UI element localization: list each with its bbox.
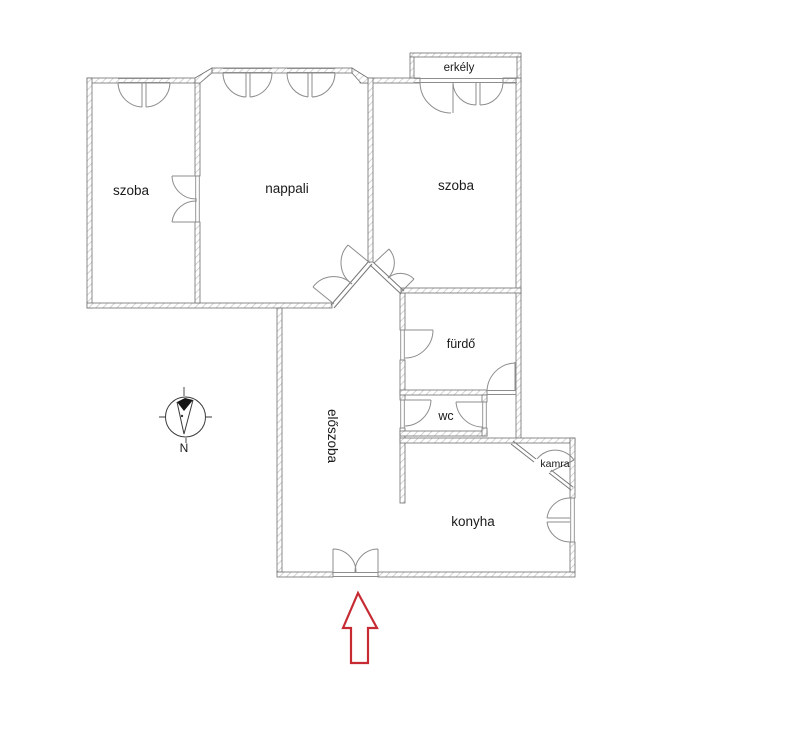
- wall: [277, 572, 333, 577]
- room-label-erkely: erkély: [444, 62, 475, 74]
- room-label-nappali: nappali: [265, 181, 309, 196]
- balcony-wall: [410, 53, 521, 57]
- floor-plan-page: szoba nappali szoba erkély fürdő wc elős…: [0, 0, 800, 738]
- wall: [378, 572, 575, 577]
- wall: [87, 303, 332, 308]
- wall: [195, 83, 200, 176]
- balcony-wall: [410, 57, 414, 78]
- wall: [195, 222, 200, 303]
- wall: [482, 395, 487, 402]
- wall: [570, 438, 575, 498]
- wall: [400, 293, 405, 330]
- wall: [570, 542, 575, 572]
- compass-north-label: N: [180, 441, 189, 455]
- room-label-kamra: kamra: [540, 458, 569, 470]
- room-label-eloszoba: előszoba: [325, 409, 340, 464]
- room-label-konyha: konyha: [451, 514, 495, 529]
- wall: [401, 288, 521, 293]
- room-label-furdo: fürdő: [447, 337, 476, 351]
- wall: [516, 78, 521, 443]
- room-label-szoba-right: szoba: [438, 178, 475, 193]
- room-label-szoba-left: szoba: [113, 183, 150, 198]
- wall: [400, 390, 487, 395]
- compass-center-dot: [181, 415, 183, 417]
- wall: [368, 78, 373, 262]
- floor-plan-drawing: szoba nappali szoba erkély fürdő wc elős…: [0, 0, 800, 738]
- wall: [87, 78, 92, 308]
- wall: [482, 428, 487, 436]
- room-label-wc: wc: [437, 409, 453, 423]
- wall: [277, 308, 282, 572]
- wall: [400, 431, 487, 436]
- balcony-wall: [517, 57, 521, 78]
- wall: [400, 438, 575, 443]
